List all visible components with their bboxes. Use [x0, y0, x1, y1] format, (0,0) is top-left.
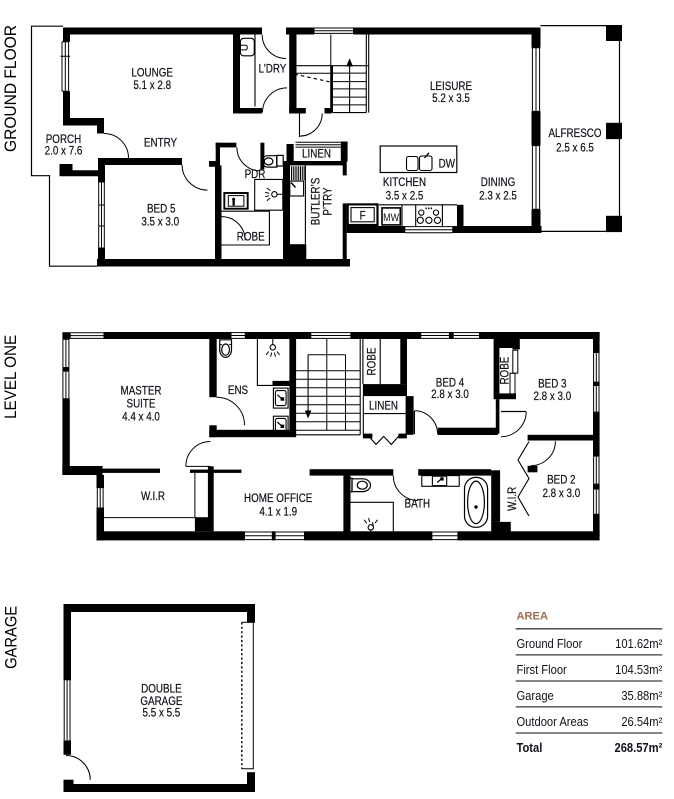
svg-text:W.I.R: W.I.R	[506, 487, 519, 511]
svg-text:101.62m²: 101.62m²	[615, 636, 662, 651]
svg-text:BED 2: BED 2	[547, 474, 575, 487]
svg-text:BED 5: BED 5	[147, 203, 175, 216]
svg-text:KITCHEN: KITCHEN	[383, 176, 426, 189]
svg-text:2.8 x 3.0: 2.8 x 3.0	[431, 388, 469, 401]
svg-text:ALFRESCO: ALFRESCO	[548, 127, 601, 140]
svg-text:Total: Total	[517, 740, 543, 755]
svg-text:26.54m²: 26.54m²	[621, 714, 662, 729]
svg-text:P’TRY: P’TRY	[322, 187, 335, 216]
svg-text:268.57m²: 268.57m²	[614, 740, 662, 755]
svg-text:GARAGE: GARAGE	[1, 606, 20, 669]
svg-text:2.8 x 3.0: 2.8 x 3.0	[533, 390, 571, 403]
svg-text:LINEN: LINEN	[302, 148, 331, 161]
svg-text:Outdoor Areas: Outdoor Areas	[517, 714, 589, 729]
svg-text:DINING: DINING	[481, 176, 515, 189]
svg-text:3.5 x 3.0: 3.5 x 3.0	[141, 215, 179, 228]
svg-text:First Floor: First Floor	[517, 662, 567, 677]
svg-text:5.5 x 5.5: 5.5 x 5.5	[143, 707, 181, 720]
svg-text:PDR: PDR	[245, 168, 266, 181]
svg-text:DOUBLE: DOUBLE	[141, 682, 181, 695]
svg-text:5.2 x 3.5: 5.2 x 3.5	[432, 92, 470, 105]
svg-text:ROBE: ROBE	[366, 348, 379, 376]
svg-text:35.88m²: 35.88m²	[621, 688, 662, 703]
svg-text:2.0 x 7.6: 2.0 x 7.6	[45, 145, 83, 158]
svg-text:2.3 x 2.5: 2.3 x 2.5	[479, 189, 517, 202]
svg-text:BATH: BATH	[405, 498, 431, 511]
svg-text:ENS: ENS	[228, 384, 248, 397]
svg-text:F: F	[360, 210, 366, 223]
svg-text:MASTER: MASTER	[121, 385, 162, 398]
svg-text:LEVEL ONE: LEVEL ONE	[1, 335, 20, 419]
svg-text:2.8 x 3.0: 2.8 x 3.0	[542, 487, 580, 500]
svg-text:104.53m²: 104.53m²	[615, 662, 662, 677]
svg-text:SUITE: SUITE	[127, 398, 156, 411]
svg-text:5.1 x 2.8: 5.1 x 2.8	[133, 79, 171, 92]
svg-text:HOME OFFICE: HOME OFFICE	[244, 492, 312, 505]
svg-text:L’DRY: L’DRY	[259, 62, 287, 75]
svg-text:Ground Floor: Ground Floor	[517, 636, 583, 651]
svg-text:3.5 x 2.5: 3.5 x 2.5	[386, 189, 424, 202]
svg-text:DW: DW	[439, 157, 456, 170]
svg-text:BED 3: BED 3	[538, 377, 566, 390]
svg-text:MW: MW	[383, 212, 399, 224]
svg-text:GROUND FLOOR: GROUND FLOOR	[1, 25, 20, 152]
svg-text:ENTRY: ENTRY	[144, 137, 178, 150]
svg-text:4.4 x 4.0: 4.4 x 4.0	[122, 411, 160, 424]
svg-text:LINEN: LINEN	[369, 400, 398, 413]
svg-text:4.1 x 1.9: 4.1 x 1.9	[259, 505, 297, 518]
svg-text:Garage: Garage	[517, 688, 554, 703]
svg-text:LOUNGE: LOUNGE	[131, 67, 173, 80]
svg-text:AREA: AREA	[517, 610, 549, 622]
svg-text:W.I.R: W.I.R	[141, 490, 165, 503]
svg-text:2.5 x 6.5: 2.5 x 6.5	[556, 141, 594, 154]
svg-text:ROBE: ROBE	[237, 230, 265, 243]
